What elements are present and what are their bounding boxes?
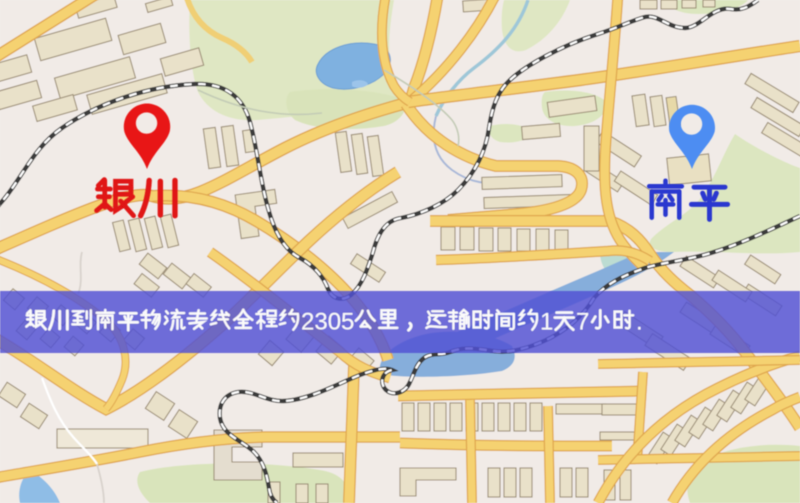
svg-text:1: 1 [540, 309, 553, 336]
svg-text:7: 7 [576, 309, 589, 336]
svg-text:2305: 2305 [301, 309, 354, 336]
svg-text:.: . [636, 309, 643, 336]
